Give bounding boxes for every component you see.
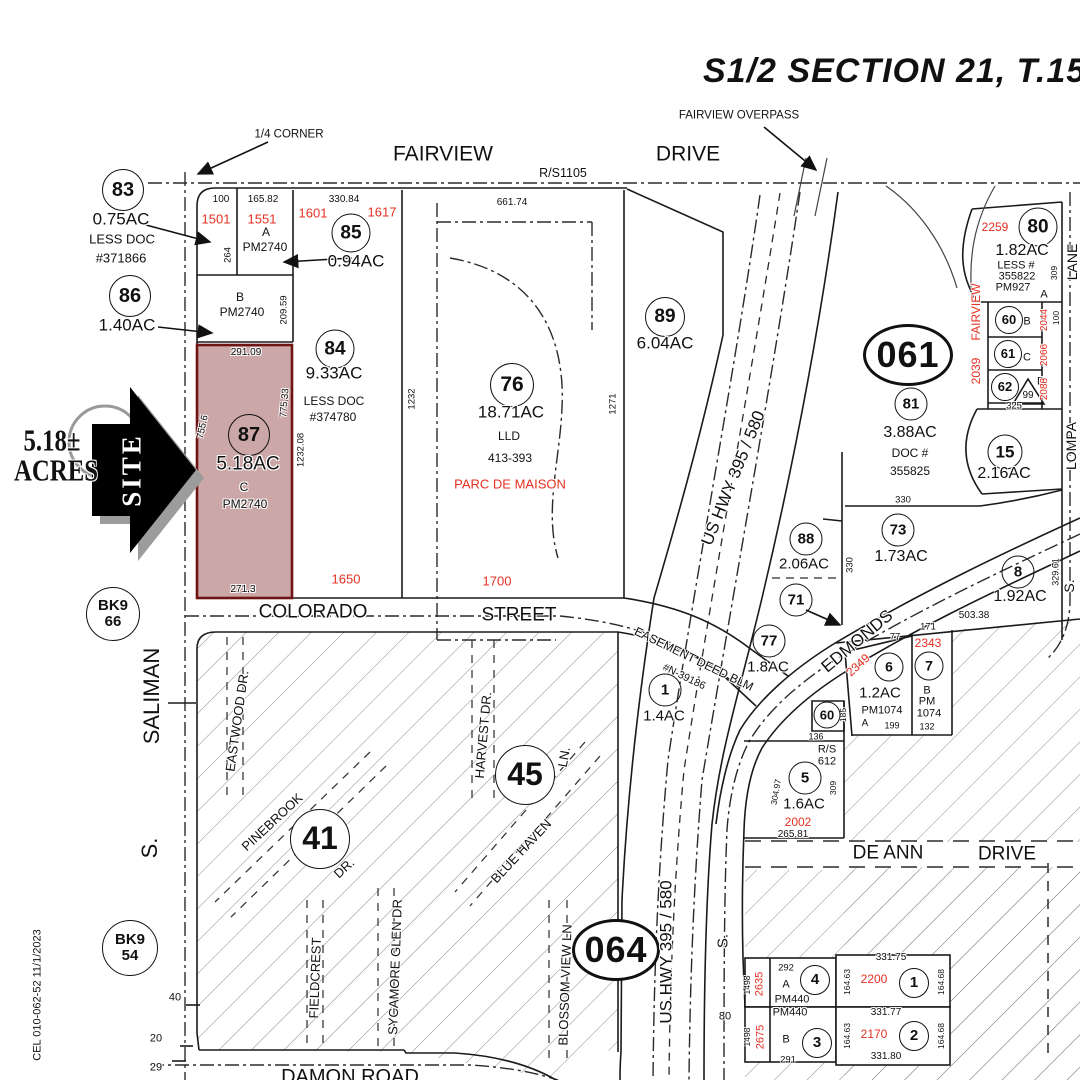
parcel-86: 86 xyxy=(109,275,151,317)
label-1232: 1232 xyxy=(407,388,417,409)
parcel-89: 89 xyxy=(645,297,685,337)
label-331-77: 331.77 xyxy=(871,1008,902,1018)
street-harvest: HARVEST DR. xyxy=(473,691,494,779)
street-de-ann: DE ANN xyxy=(853,844,924,863)
label-330-84: 330.84 xyxy=(329,195,360,205)
label-355825: 355825 xyxy=(890,465,930,477)
label-331-80: 331.80 xyxy=(871,1052,902,1062)
label-a: A xyxy=(862,719,869,729)
label-s: S. xyxy=(1062,579,1076,592)
street-colorado: COLORADO xyxy=(259,603,368,622)
label-292: 292 xyxy=(778,963,794,973)
label-331-75: 331.75 xyxy=(876,953,907,963)
label-1650: 1650 xyxy=(332,573,361,586)
label-2066: 2066 xyxy=(1040,344,1050,366)
label-132: 132 xyxy=(919,723,934,732)
label-165-82: 165.82 xyxy=(248,195,279,205)
label-3-88ac: 3.88AC xyxy=(883,425,936,441)
label-2-06ac: 2.06AC xyxy=(779,557,829,572)
label-pm: PM xyxy=(919,697,936,708)
street-fairview-drive: DRIVE xyxy=(656,144,720,165)
parcel-80: 80 xyxy=(1019,208,1058,247)
label-100: 100 xyxy=(1052,311,1061,325)
parcel-87-acreage: 5.18AC xyxy=(216,455,279,474)
label-2200: 2200 xyxy=(861,973,888,985)
label-1617: 1617 xyxy=(368,206,397,219)
label-265-81: 265.81 xyxy=(778,830,809,840)
label-r-s1105: R/S1105 xyxy=(539,167,587,180)
parcel-1-south: 1 xyxy=(899,968,929,998)
label-271-3: 271.3 xyxy=(230,585,255,595)
parcel-87-site: 87 xyxy=(228,414,270,456)
parcel-6: 6 xyxy=(875,653,904,682)
street-eastwood: EASTWOOD DR. xyxy=(223,670,250,773)
parcel-71: 71 xyxy=(780,584,813,617)
label-136: 136 xyxy=(808,733,823,742)
label-2675: 2675 xyxy=(756,1025,767,1049)
label-612: 612 xyxy=(818,757,836,768)
label-2088: 2088 xyxy=(1040,378,1050,400)
label-99: 99 xyxy=(1022,391,1033,401)
label-s: S. xyxy=(139,838,161,859)
label-r-s: R/S xyxy=(818,745,836,756)
label-c: C xyxy=(240,481,249,493)
label-2635: 2635 xyxy=(755,972,766,996)
parcel-83: 83 xyxy=(102,169,144,211)
label-pm2740: PM2740 xyxy=(243,241,288,253)
label-1501: 1501 xyxy=(202,213,231,226)
label-2343: 2343 xyxy=(915,637,942,649)
street-blue-haven: BLUE HAVEN xyxy=(488,817,553,885)
label-18-71ac: 18.71AC xyxy=(478,404,544,421)
label-c: C xyxy=(1023,353,1031,364)
parcel-2: 2 xyxy=(899,1021,929,1051)
label-1551: 1551 xyxy=(248,213,277,226)
label-pm2740: PM2740 xyxy=(220,306,265,318)
label-29: 29 xyxy=(150,1063,162,1074)
label-20: 20 xyxy=(150,1034,162,1045)
bk9-54: BK9 54 xyxy=(102,920,158,976)
label-2170: 2170 xyxy=(861,1028,888,1040)
label-ln: LN. xyxy=(556,746,572,768)
bk9-66: BK9 66 xyxy=(86,587,140,641)
label-291-09: 291.09 xyxy=(231,348,262,358)
label-a: A xyxy=(1040,290,1047,301)
parcel-8: 8 xyxy=(1002,556,1035,589)
street-saliman: SALIMAN xyxy=(141,648,163,745)
parcel-88: 88 xyxy=(790,523,823,556)
street-colorado-street: STREET xyxy=(482,606,557,625)
label-329-61: 329.61 xyxy=(1052,558,1061,586)
label-330: 330 xyxy=(845,557,855,573)
label-fairview: FAIRVIEW xyxy=(970,283,982,340)
label-100: 100 xyxy=(213,195,230,205)
label-503-38: 503.38 xyxy=(959,611,990,621)
label-164-68: 164.68 xyxy=(937,969,946,995)
parcel-60-b: 60 xyxy=(995,306,1023,334)
label-291: 291 xyxy=(780,1055,796,1065)
site-acreage-line2: ACRES xyxy=(14,455,98,486)
label-164-63: 164.63 xyxy=(843,969,852,995)
label-2002: 2002 xyxy=(785,816,812,828)
label-1-2ac: 1.2AC xyxy=(859,686,901,701)
street-us-hwy-upper: US HWY 395 / 580 xyxy=(698,408,767,547)
street-fairview: FAIRVIEW xyxy=(393,144,493,165)
street-sycamore-glen: SYCAMORE GLEN DR xyxy=(386,899,404,1035)
label-6-04ac: 6.04AC xyxy=(637,335,694,352)
street-fieldcrest: FIELDCREST xyxy=(307,937,323,1018)
parcel-id-footer: CEL 010-062-52 11/1/2023 xyxy=(33,929,44,1061)
street-lompa-lane: LANE xyxy=(1065,244,1079,281)
label-b: B xyxy=(782,1035,789,1046)
label-199: 199 xyxy=(884,722,899,731)
block-45: 45 xyxy=(495,745,555,805)
label-pm2740: PM2740 xyxy=(223,498,268,510)
label-164-68: 164.68 xyxy=(937,1023,946,1049)
map-labels: FAIRVIEW OVERPASS1/4 CORNERFAIRVIEWDRIVE… xyxy=(0,0,1080,1080)
label-1-40ac: 1.40AC xyxy=(99,317,156,334)
label-1271: 1271 xyxy=(608,393,618,414)
parcel-73: 73 xyxy=(882,514,915,547)
parcel-7: 7 xyxy=(915,652,944,681)
label-171: 171 xyxy=(920,622,936,632)
label-1-4ac: 1.4AC xyxy=(643,709,685,724)
label-1601: 1601 xyxy=(299,207,328,220)
label-330: 330 xyxy=(895,495,911,505)
label-pm1074: PM1074 xyxy=(862,706,903,717)
street-de-ann-drive: DRIVE xyxy=(978,845,1036,864)
quarter-corner-label: 1/4 CORNER xyxy=(254,129,323,141)
label-1-6ac: 1.6AC xyxy=(783,797,825,812)
label-309: 309 xyxy=(829,781,838,795)
label-374780: #374780 xyxy=(310,411,357,423)
label-pm927: PM927 xyxy=(996,283,1031,294)
parcel-3: 3 xyxy=(802,1028,832,1058)
label-1700: 1700 xyxy=(483,575,512,588)
label-2044: 2044 xyxy=(1040,309,1050,331)
label-b: B xyxy=(236,291,244,303)
label-1-92ac: 1.92AC xyxy=(993,589,1046,605)
street-lompa: LOMPA xyxy=(1064,422,1078,470)
label-1-73ac: 1.73AC xyxy=(874,549,927,565)
assessor-parcel-map: S1/2 SECTION 21, T.15 N., FAIRVIEW OVERP… xyxy=(0,0,1080,1080)
label-80: 80 xyxy=(719,1012,731,1023)
label-325: 325 xyxy=(1006,401,1022,411)
label-40: 40 xyxy=(169,993,181,1004)
parcel-85: 85 xyxy=(332,214,371,253)
label-b: B xyxy=(1023,317,1030,328)
label-0-94ac: 0.94AC xyxy=(328,253,385,270)
label-2039: 2039 xyxy=(970,358,982,385)
label-371866: #371866 xyxy=(96,252,147,265)
parcel-4: 4 xyxy=(800,965,830,995)
label-775-33: 775.33 xyxy=(279,388,291,418)
parc-de-maison-label: PARC DE MAISON xyxy=(454,478,566,491)
label-304-97: 304.97 xyxy=(770,778,783,805)
site-acreage-line1: 5.18± xyxy=(23,425,80,456)
fairview-overpass-label: FAIRVIEW OVERPASS xyxy=(679,110,799,122)
map-book-061: 061 xyxy=(863,324,953,386)
label-doc: DOC # xyxy=(892,447,929,459)
label-755-6: 755.6 xyxy=(196,414,210,439)
label-less-doc: LESS DOC xyxy=(89,233,155,246)
site-arrow-label: SITE xyxy=(119,433,146,507)
label-pm440: PM440 xyxy=(775,995,810,1006)
label-1498: 1498 xyxy=(743,976,752,995)
parcel-77: 77 xyxy=(753,625,786,658)
label-264: 264 xyxy=(223,247,233,263)
parcel-61-c: 61 xyxy=(994,340,1022,368)
label-661-74: 661.74 xyxy=(497,198,528,208)
parcel-60: 60 xyxy=(814,702,841,729)
label-pm440: PM440 xyxy=(773,1008,808,1019)
map-book-064: 064 xyxy=(572,919,660,981)
label-309: 309 xyxy=(1050,266,1059,280)
parcel-1: 1 xyxy=(649,674,682,707)
label-1074: 1074 xyxy=(917,709,941,720)
label-1498: 1498 xyxy=(743,1028,752,1047)
label-77: 77 xyxy=(890,632,901,642)
label-s: S. xyxy=(716,934,731,948)
label-a: A xyxy=(262,226,270,238)
label-lld: LLD xyxy=(498,430,520,442)
parcel-5: 5 xyxy=(789,762,822,795)
label-a: A xyxy=(782,980,789,991)
label-413-393: 413-393 xyxy=(488,452,532,464)
label-2-16ac: 2.16AC xyxy=(977,466,1030,482)
label-9-33ac: 9.33AC xyxy=(306,365,363,382)
label-164-63: 164.63 xyxy=(843,1023,852,1049)
label-2259: 2259 xyxy=(982,221,1009,233)
street-blossom-view: BLOSSOM VIEW LN xyxy=(556,924,573,1046)
parcel-76: 76 xyxy=(490,363,534,407)
label-0-75ac: 0.75AC xyxy=(93,211,150,228)
label-209-59: 209.59 xyxy=(279,295,289,324)
label-1-8ac: 1.8AC xyxy=(747,660,789,675)
street-damon-road: DAMON ROAD xyxy=(281,1067,419,1080)
label-less-doc: LESS DOC xyxy=(304,395,365,407)
parcel-81: 81 xyxy=(895,388,928,421)
parcel-62-d: 62 xyxy=(991,373,1019,401)
label-1232-08: 1232.08 xyxy=(296,433,306,467)
label-1-82ac: 1.82AC xyxy=(995,243,1048,259)
street-us-hwy-lower: US HWY 395 / 580 xyxy=(658,880,675,1023)
